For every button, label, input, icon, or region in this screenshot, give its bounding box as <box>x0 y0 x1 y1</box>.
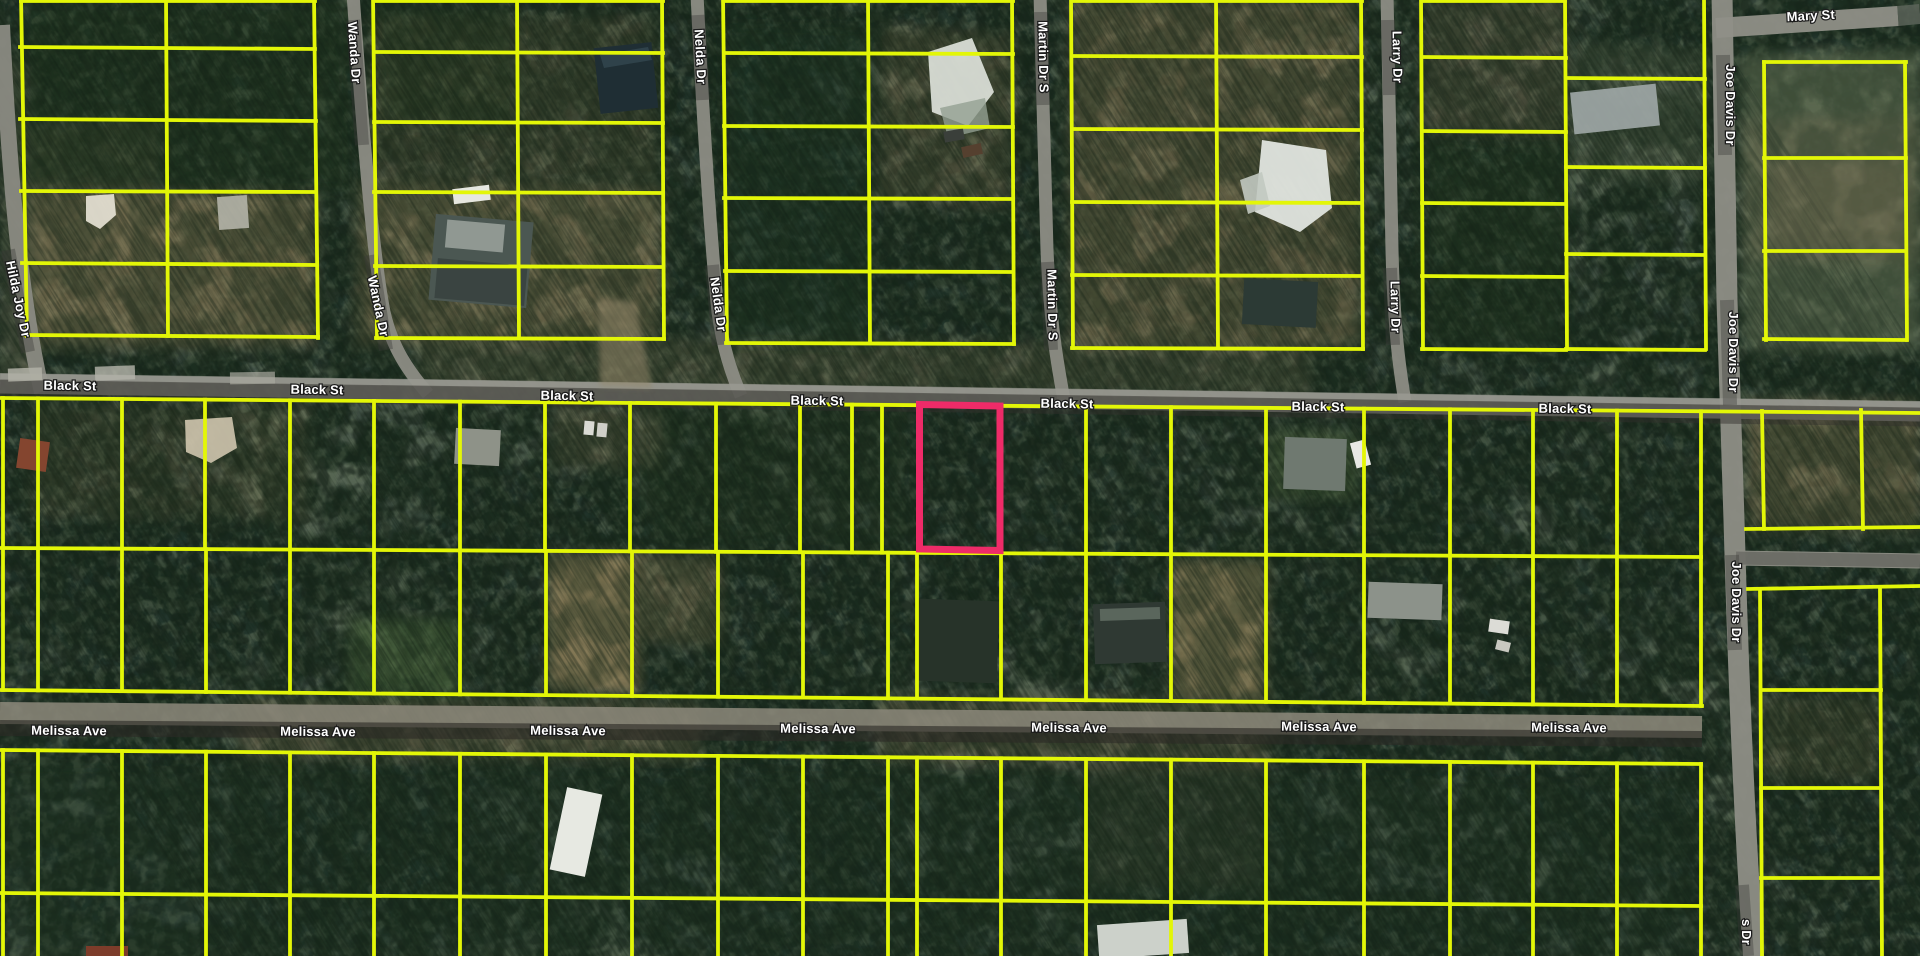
svg-text:Black St: Black St <box>541 388 595 404</box>
svg-text:Black St: Black St <box>291 382 345 398</box>
svg-text:Black St: Black St <box>1041 396 1095 412</box>
svg-text:Larry Dr: Larry Dr <box>1388 281 1404 333</box>
svg-text:Larry Dr: Larry Dr <box>1390 31 1406 83</box>
svg-text:Melissa Ave: Melissa Ave <box>1281 719 1357 735</box>
svg-text:Melissa Ave: Melissa Ave <box>1031 720 1107 736</box>
svg-text:Martin Dr S: Martin Dr S <box>1044 269 1060 341</box>
svg-text:s Dr: s Dr <box>1739 919 1754 945</box>
svg-text:Joe Davis Dr: Joe Davis Dr <box>1729 561 1744 642</box>
svg-text:Black St: Black St <box>791 393 845 409</box>
svg-text:Melissa Ave: Melissa Ave <box>280 724 356 740</box>
svg-text:Melissa Ave: Melissa Ave <box>1531 720 1607 736</box>
svg-text:Black St: Black St <box>1539 401 1593 417</box>
svg-text:Melissa Ave: Melissa Ave <box>780 721 856 737</box>
svg-text:Joe Davis Dr: Joe Davis Dr <box>1726 311 1741 392</box>
svg-text:Melissa Ave: Melissa Ave <box>530 723 606 739</box>
svg-text:Black St: Black St <box>1292 399 1346 415</box>
svg-text:Joe Davis Dr: Joe Davis Dr <box>1723 64 1738 145</box>
svg-text:Nelda Dr: Nelda Dr <box>692 29 710 85</box>
svg-text:Martin Dr S: Martin Dr S <box>1035 21 1051 93</box>
svg-text:Melissa Ave: Melissa Ave <box>31 723 107 739</box>
svg-text:Black St: Black St <box>44 378 98 394</box>
svg-text:Mary St: Mary St <box>1786 7 1836 25</box>
